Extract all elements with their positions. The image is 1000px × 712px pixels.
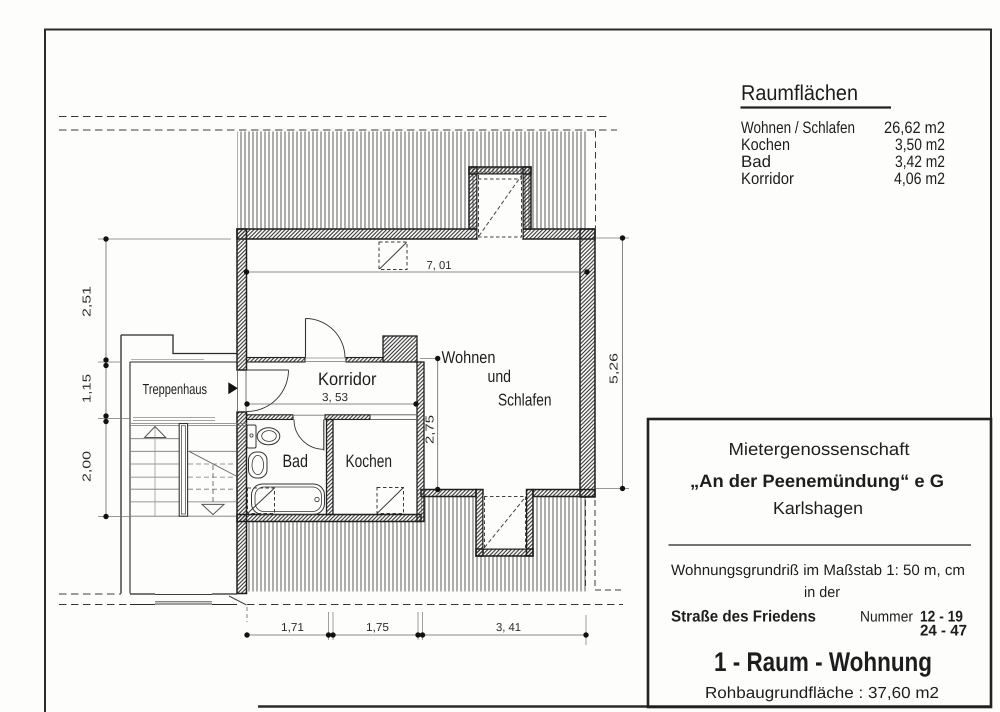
svg-text:Mietergenossenschaft: Mietergenossenschaft	[729, 439, 910, 459]
svg-text:Treppenhaus: Treppenhaus	[143, 382, 208, 398]
svg-text:26,62 m2: 26,62 m2	[884, 119, 945, 137]
svg-text:1,15: 1,15	[82, 374, 94, 403]
svg-text:Rohbaugrundfläche : 37,60: Rohbaugrundfläche : 37,60 m2	[705, 685, 939, 702]
svg-text:und: und	[488, 367, 512, 386]
svg-text:„An der Peenemündung“ e G: „An der Peenemündung“ e G	[690, 471, 944, 491]
svg-text:5,26: 5,26	[609, 353, 621, 384]
svg-text:7, 01: 7, 01	[427, 260, 452, 272]
svg-text:1 - Raum - Wohnung: 1 - Raum - Wohnung	[714, 647, 932, 677]
svg-text:2,00: 2,00	[82, 451, 94, 482]
svg-text:Korridor: Korridor	[741, 170, 794, 188]
svg-text:Wohnen: Wohnen	[442, 348, 496, 367]
svg-text:24 - 47: 24 - 47	[920, 623, 967, 640]
svg-text:4,06 m2: 4,06 m2	[894, 170, 945, 188]
svg-text:3, 53: 3, 53	[322, 392, 348, 404]
svg-text:Straße des Friedens: Straße des Friedens	[671, 609, 816, 626]
svg-text:Schlafen: Schlafen	[498, 391, 552, 410]
svg-text:3,50 m2: 3,50 m2	[895, 136, 945, 154]
svg-text:3,42 m2: 3,42 m2	[895, 153, 945, 171]
svg-text:2,75: 2,75	[425, 415, 437, 444]
svg-text:Bad: Bad	[283, 451, 309, 471]
svg-text:Karlshagen: Karlshagen	[773, 498, 863, 518]
svg-text:3, 41: 3, 41	[496, 622, 521, 634]
svg-text:Bad: Bad	[741, 153, 771, 171]
svg-text:2,51: 2,51	[82, 286, 94, 317]
svg-text:1,75: 1,75	[366, 622, 389, 634]
svg-text:Kochen: Kochen	[346, 451, 393, 471]
svg-text:Nummer: Nummer	[860, 609, 913, 626]
svg-text:Raumflächen: Raumflächen	[741, 81, 858, 105]
svg-text:Wohnen / Schlafen: Wohnen / Schlafen	[741, 119, 855, 137]
svg-text:Kochen: Kochen	[741, 136, 790, 154]
svg-text:Korridor: Korridor	[318, 369, 377, 389]
svg-text:Wohnungsgrundriß im Maßstab: Wohnungsgrundriß im Maßstab 1: 50 m, cm	[671, 562, 965, 579]
svg-text:in der: in der	[804, 584, 840, 601]
svg-text:1,71: 1,71	[281, 622, 304, 634]
